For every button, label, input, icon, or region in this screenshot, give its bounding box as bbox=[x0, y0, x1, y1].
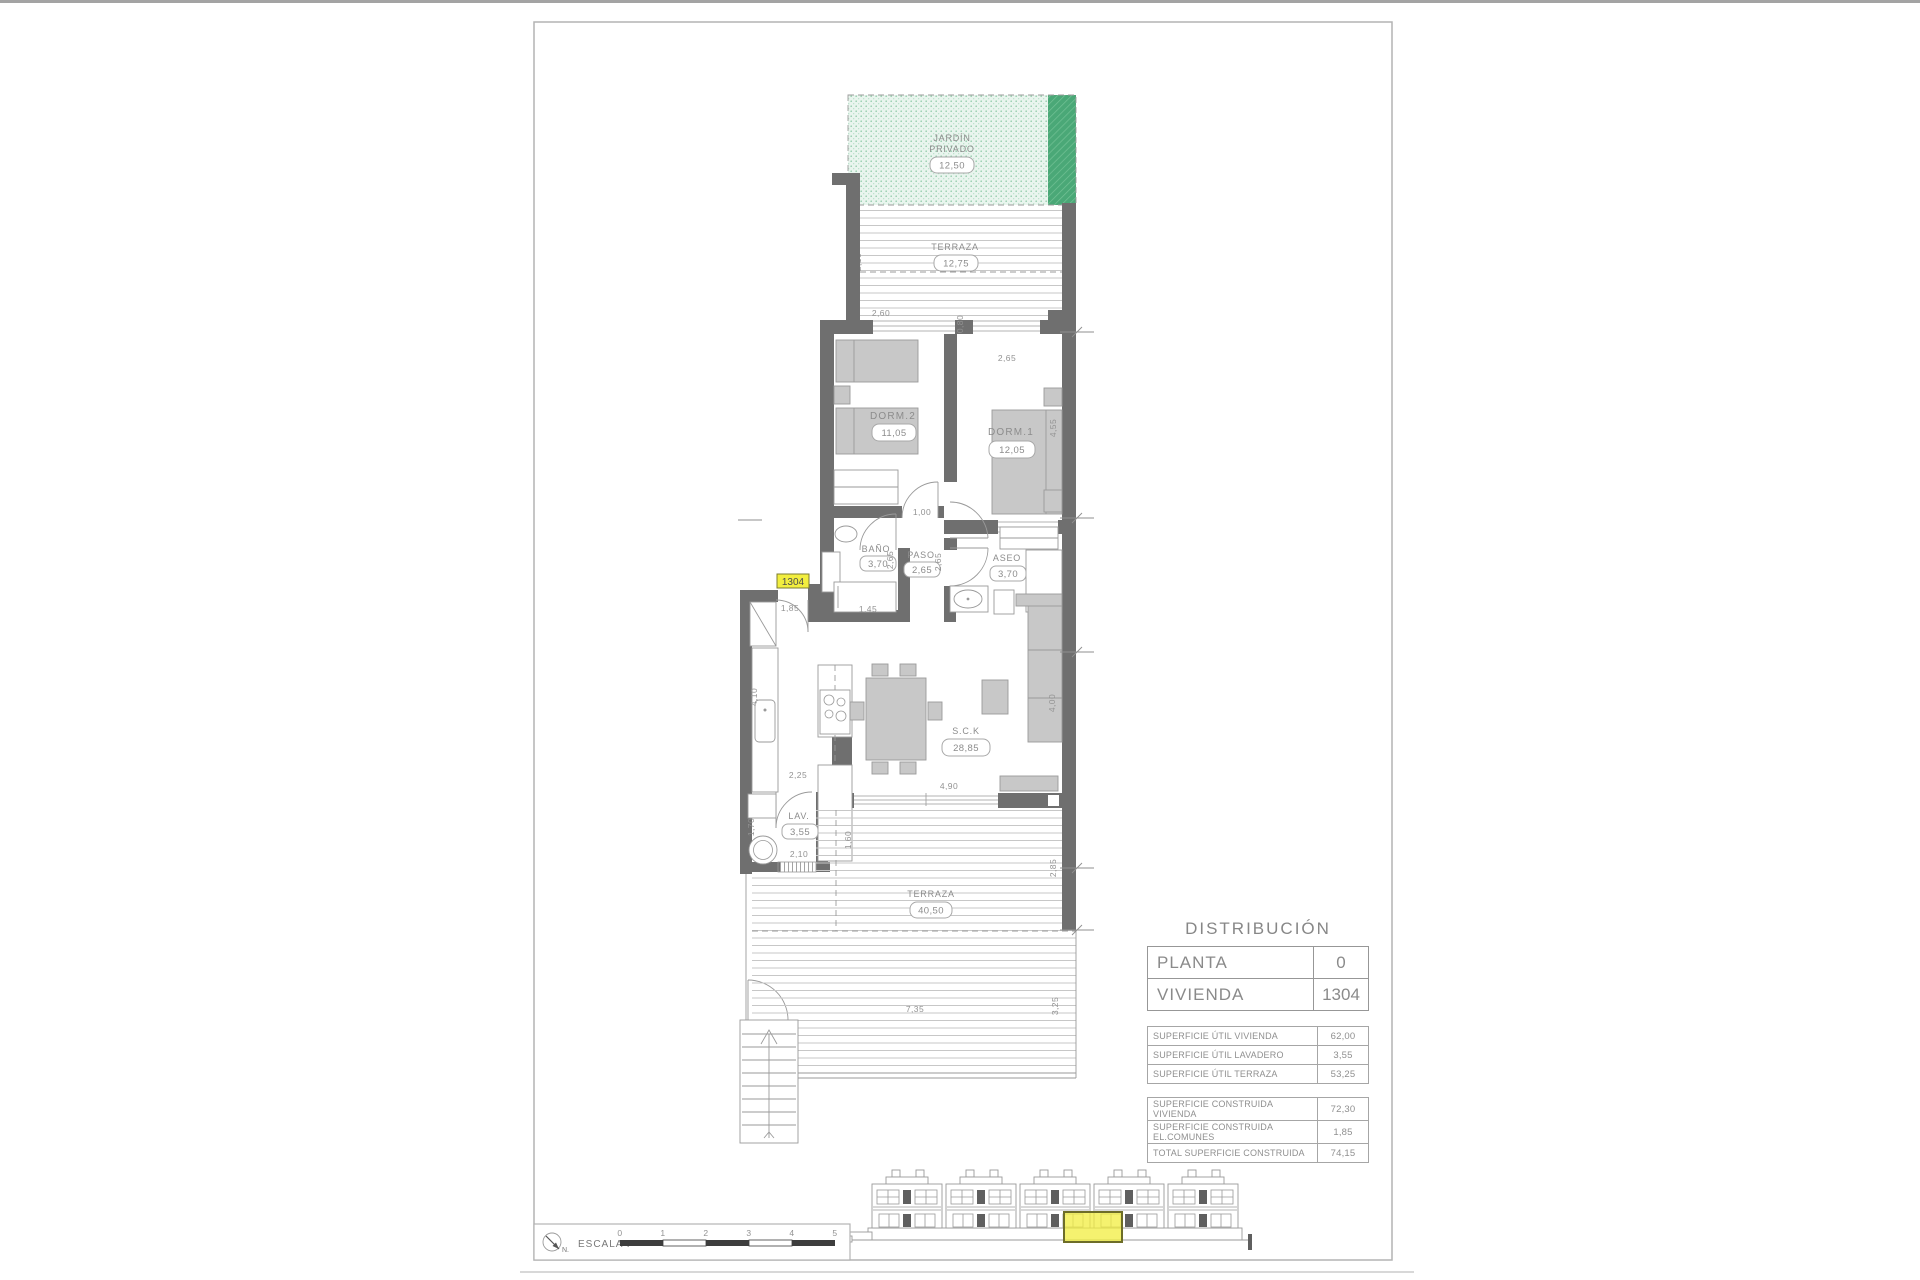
dim-terraza-width: 7,35 bbox=[906, 1004, 924, 1014]
planta-label: PLANTA bbox=[1148, 947, 1314, 979]
room-label-aseo: ASEO bbox=[993, 553, 1021, 563]
dim-bano-depth: 2,65 bbox=[885, 551, 895, 569]
svg-text:3: 3 bbox=[746, 1228, 751, 1238]
distribution-title: DISTRIBUCIÓN bbox=[1147, 919, 1369, 939]
room-label-dorm2: DORM.2 bbox=[870, 411, 916, 422]
table-row: SUPERFICIE ÚTIL VIVIENDA 62,00 bbox=[1148, 1027, 1369, 1046]
dim-paso-depth: 2,65 bbox=[933, 553, 943, 571]
dining-table bbox=[866, 678, 926, 760]
svg-text:2: 2 bbox=[703, 1228, 708, 1238]
chair bbox=[900, 664, 916, 676]
area-jardin: 12,50 bbox=[939, 161, 965, 172]
dim-hall-width: 1,00 bbox=[913, 507, 931, 517]
sofa bbox=[1028, 602, 1062, 742]
table-row: SUPERFICIE CONSTRUIDA EL.COMUNES 1,85 bbox=[1148, 1121, 1369, 1144]
chair bbox=[900, 762, 916, 774]
scale-box: N. ESCALA : 0 1 2 3 4 5 bbox=[534, 1224, 850, 1260]
area-lav: 3,55 bbox=[790, 827, 810, 838]
area-sck: 28,85 bbox=[953, 743, 979, 754]
superficie-util-table: SUPERFICIE ÚTIL VIVIENDA 62,00 SUPERFICI… bbox=[1147, 1026, 1369, 1084]
unit-tag: 1304 bbox=[777, 574, 809, 588]
armchair bbox=[982, 680, 1008, 714]
window-dorm2 bbox=[873, 318, 955, 334]
garden-hedge-strip bbox=[1048, 95, 1076, 205]
distribution-panel: DISTRIBUCIÓN PLANTA 0 VIVIENDA 1304 SUPE… bbox=[1147, 919, 1369, 1163]
sofa-chaise bbox=[1016, 594, 1062, 606]
chair bbox=[850, 702, 864, 720]
dim-dorm1-depth: 4,55 bbox=[1048, 419, 1058, 437]
dim-dorm2-window: 2,60 bbox=[872, 308, 890, 318]
svg-text:5: 5 bbox=[832, 1228, 837, 1238]
nightstand-dorm1-bottom bbox=[1044, 490, 1062, 512]
room-label-terraza-top: TERRAZA bbox=[931, 242, 979, 252]
area-terraza-top: 12,75 bbox=[943, 259, 969, 270]
dim-lav-door: 2,25 bbox=[789, 770, 807, 780]
garden-area: JARDÍN PRIVADO 12,50 bbox=[848, 95, 1076, 205]
toilet-bano bbox=[835, 526, 857, 542]
room-label-terraza-bottom: TERRAZA bbox=[907, 889, 955, 899]
svg-text:0: 0 bbox=[617, 1228, 622, 1238]
table-row: SUPERFICIE ÚTIL LAVADERO 3,55 bbox=[1148, 1046, 1369, 1065]
dim-lav-width: 2,10 bbox=[790, 849, 808, 859]
room-label-paso: PASO bbox=[907, 550, 935, 560]
lav-cabinet bbox=[748, 794, 776, 818]
room-label-dorm1: DORM.1 bbox=[988, 427, 1034, 438]
planta-value: 0 bbox=[1314, 947, 1369, 979]
svg-text:1304: 1304 bbox=[782, 577, 805, 588]
area-aseo: 3,70 bbox=[998, 569, 1018, 580]
dim-terraza-right: 2,85 bbox=[1048, 859, 1058, 877]
svg-text:4: 4 bbox=[789, 1228, 794, 1238]
dim-living-depth: 4,00 bbox=[1047, 694, 1057, 712]
dim-kitchen-depth: 4,10 bbox=[749, 688, 759, 706]
table-row: SUPERFICIE ÚTIL TERRAZA 53,25 bbox=[1148, 1065, 1369, 1084]
dim-hall-gap: 0,80 bbox=[955, 315, 965, 333]
window-lavadero bbox=[778, 862, 816, 872]
stairs bbox=[740, 1020, 798, 1143]
window-living bbox=[854, 793, 998, 806]
svg-text:1: 1 bbox=[660, 1228, 665, 1238]
cooktop bbox=[820, 690, 850, 734]
bed-dorm2-a bbox=[836, 340, 918, 382]
dim-entry-width: 1,85 bbox=[781, 603, 799, 613]
dim-living-window: 4,90 bbox=[940, 781, 958, 791]
floorplan-svg: JARDÍN PRIVADO 12,50 TERRAZA 12,75 2,10 bbox=[0, 0, 1920, 1280]
chair bbox=[872, 664, 888, 676]
area-terraza-bottom: 40,50 bbox=[918, 906, 944, 917]
vivienda-value: 1304 bbox=[1314, 979, 1369, 1011]
unit-highlight bbox=[1064, 1212, 1122, 1242]
table-row: SUPERFICIE CONSTRUIDA VIVIENDA 72,30 bbox=[1148, 1098, 1369, 1121]
elevation-key bbox=[842, 1170, 1252, 1250]
table-row: TOTAL SUPERFICIE CONSTRUIDA 74,15 bbox=[1148, 1144, 1369, 1163]
window-dorm1 bbox=[973, 318, 1040, 334]
plan-sheet: JARDÍN PRIVADO 12,50 TERRAZA 12,75 2,10 bbox=[0, 0, 1920, 1280]
nightstand-dorm2 bbox=[834, 386, 850, 404]
area-paso: 2,65 bbox=[912, 565, 932, 576]
area-dorm2: 11,05 bbox=[881, 428, 906, 439]
room-label-sck: S.C.K bbox=[952, 726, 980, 736]
vivienda-label: VIVIENDA bbox=[1148, 979, 1314, 1011]
svg-text:PRIVADO: PRIVADO bbox=[929, 144, 974, 154]
dim-lav-depth: 1,70 bbox=[746, 818, 756, 836]
dim-terraza-depth: 3,25 bbox=[1050, 997, 1060, 1015]
room-label-jardin: JARDÍN bbox=[933, 133, 970, 143]
superficie-construida-table: SUPERFICIE CONSTRUIDA VIVIENDA 72,30 SUP… bbox=[1147, 1097, 1369, 1163]
dim-terraza-cover: 1,60 bbox=[843, 831, 853, 849]
planta-vivienda-table: PLANTA 0 VIVIENDA 1304 bbox=[1147, 946, 1369, 1011]
nightstand-dorm1-top bbox=[1044, 388, 1062, 406]
dim-tub-length: 1,45 bbox=[859, 604, 877, 614]
toilet-aseo bbox=[994, 590, 1014, 614]
chair bbox=[928, 702, 942, 720]
chair bbox=[872, 762, 888, 774]
dim-dorm1-window: 2,65 bbox=[998, 353, 1016, 363]
area-dorm1: 12,05 bbox=[999, 445, 1025, 456]
tv-bench bbox=[1000, 776, 1058, 791]
svg-text:N.: N. bbox=[562, 1247, 569, 1254]
room-label-lav: LAV. bbox=[788, 811, 809, 821]
